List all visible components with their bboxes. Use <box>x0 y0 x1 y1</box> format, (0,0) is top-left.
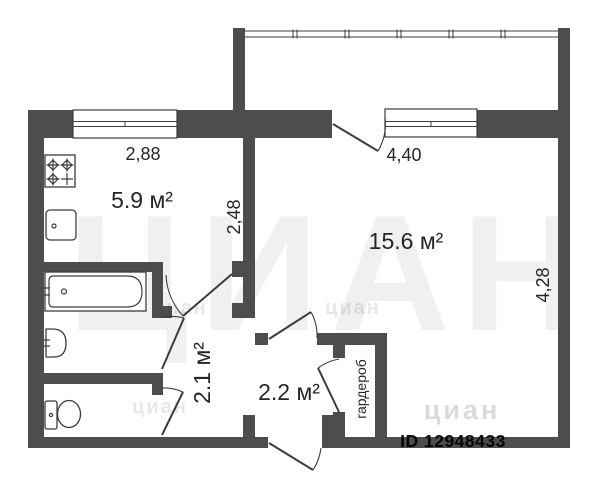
wall-kitchen-room-divider <box>243 138 255 318</box>
floorplan-drawing: ЦИАН циан циан циан <box>0 0 600 480</box>
room-label-wardrobe: гардероб <box>353 359 369 419</box>
wall-wardrobe-right <box>375 345 387 437</box>
watermark-tile: циан <box>325 297 381 319</box>
toilet-icon <box>45 401 81 430</box>
wall-right <box>558 28 570 448</box>
bathtub-icon <box>44 272 146 311</box>
dimension-kitchen-width: 2,88 <box>125 144 160 164</box>
wall-wc-divider <box>44 373 163 384</box>
room-label-hall: 2.2 м² <box>258 379 320 405</box>
watermark-listing-id: ID 12948433 <box>400 431 506 451</box>
watermark-brand-small: циан <box>424 395 501 425</box>
wall-balcony-left <box>233 28 245 110</box>
dimension-kitchen-depth: 2,48 <box>224 199 244 234</box>
dimension-living-depth: 4,28 <box>533 267 553 302</box>
wall-wardrobe-top <box>317 333 387 345</box>
wall-wc-stub <box>152 384 163 395</box>
washbasin-icon <box>44 329 66 357</box>
wall-top-kitchen-a <box>28 110 73 138</box>
wall-top-room <box>477 110 570 138</box>
wall-bottom-a <box>28 437 268 448</box>
wall-divider-stub <box>232 303 243 318</box>
wall-corridor-stub <box>243 415 255 437</box>
room-label-corridor: 2.1 м² <box>189 342 215 404</box>
wall-wardrobe-left-top <box>333 345 345 358</box>
wall-left <box>28 110 44 448</box>
wall-top-kitchen-b <box>177 110 332 138</box>
kitchen-sink-icon <box>46 210 76 240</box>
room-label-living: 15.6 м² <box>369 228 444 254</box>
kitchen-window <box>73 110 177 138</box>
wall-wardrobe-left-bottom <box>333 412 345 437</box>
floorplan-page: ЦИАН циан циан циан <box>0 0 600 480</box>
wall-bathroom-right <box>152 262 163 306</box>
room-label-kitchen: 5.9 м² <box>111 187 173 213</box>
wall-kitchen-door-jamb <box>232 261 243 277</box>
wall-bathroom-top <box>44 262 163 272</box>
stove-icon <box>45 155 75 187</box>
wall-entrance-jamb <box>322 415 333 437</box>
living-room-window <box>385 109 477 137</box>
dimension-living-width: 4,40 <box>386 145 421 165</box>
wall-roomdoor-stub <box>255 333 268 345</box>
